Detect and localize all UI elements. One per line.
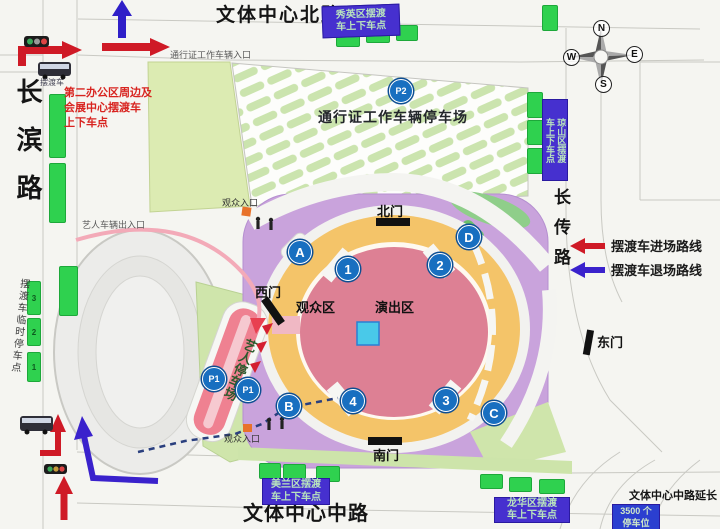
stage-area-label: 演出区 — [375, 297, 414, 316]
note-office-shuttle-stop: 第二办公区周边及 会展中心摆渡车 上下车点 — [64, 86, 152, 131]
temp-stop-1: 1 — [27, 352, 41, 382]
artist-vehicle-gate-label: 艺人车辆出入口 — [82, 218, 145, 231]
audience-area-label: 观众区 — [296, 297, 335, 316]
legend-exit-label: 摆渡车退场路线 — [611, 260, 702, 279]
marker-1: 1 — [336, 257, 360, 281]
marker-4: 4 — [341, 389, 365, 413]
badge-meilan-shuttle-stop: 美兰区摆渡 车上下车点 — [262, 478, 330, 505]
compass-e: E — [626, 46, 643, 63]
shuttle-exit-arrow-icon — [570, 262, 605, 278]
shuttle-stop-bar — [542, 5, 558, 31]
legend-exit-row: 摆渡车退场路线 — [570, 260, 702, 279]
north-gate-label: 北门 — [377, 201, 403, 220]
badge-parking-capacity: 3500 个 停车位 — [612, 504, 660, 529]
east-gate-bar — [583, 329, 594, 355]
shuttle-stop-bar — [59, 266, 78, 316]
shuttle-enter-arrow-icon — [570, 238, 605, 254]
legend-enter-label: 摆渡车进场路线 — [611, 236, 702, 255]
venue-map: 3 2 1 文体中心北路 长滨路 长传路 文体中心中路 文体中心中路延长线 N … — [0, 0, 720, 529]
shuttle-stop-bar — [480, 474, 503, 489]
shuttle-stop-bar — [539, 479, 565, 494]
marker-d: D — [457, 225, 481, 249]
marker-c: C — [482, 401, 506, 425]
shuttle-stop-bar — [49, 163, 66, 223]
shuttle-stop-bar — [259, 463, 281, 479]
stop-number: 2 — [28, 319, 40, 345]
compass-s: S — [595, 76, 612, 93]
marker-3: 3 — [434, 388, 458, 412]
west-gate-label: 西门 — [255, 282, 281, 301]
temp-stop-2: 2 — [27, 318, 41, 346]
marker-b: B — [277, 394, 301, 418]
shuttle-stop-bar — [509, 477, 532, 492]
badge-longhua-shuttle-stop: 龙华区摆渡 车上下车点 — [494, 497, 570, 523]
permit-vehicle-entrance-label: 通行证工作车辆入口 — [170, 48, 251, 61]
traffic-light-icon-top — [24, 36, 49, 47]
road-label-west: 长滨路 — [10, 78, 47, 258]
marker-p1: P1 — [202, 367, 226, 391]
shuttle-bus-label: 摆渡车 — [40, 77, 64, 88]
traffic-light-icon-bottom — [44, 464, 67, 474]
shuttle-stop-bar — [527, 92, 543, 118]
badge-qiongshan-shuttle-stop: 琼山区摆渡 车上下车点 — [542, 99, 568, 181]
marker-p1: P1 — [236, 378, 260, 402]
marker-p2: P2 — [389, 79, 413, 103]
audience-entrance-south-label: 观众入口 — [224, 432, 260, 445]
bus-icon-bottom — [20, 416, 53, 435]
badge-xiuying-shuttle-stop: 秀英区摆渡 车上下车点 — [321, 4, 400, 39]
legend-enter-row: 摆渡车进场路线 — [570, 236, 702, 255]
stop-number: 1 — [28, 353, 40, 381]
marker-2: 2 — [428, 253, 452, 277]
south-gate-label: 南门 — [373, 445, 399, 464]
stage-square — [357, 322, 379, 345]
marker-a: A — [288, 240, 312, 264]
permit-parking-lot-label: 通行证工作车辆停车场 — [318, 107, 468, 127]
audience-entrance-north-label: 观众入口 — [222, 196, 258, 209]
compass-n: N — [593, 20, 610, 37]
compass-w: W — [563, 49, 580, 66]
east-gate-label: 东门 — [597, 332, 623, 351]
south-gate-bar — [368, 437, 402, 445]
